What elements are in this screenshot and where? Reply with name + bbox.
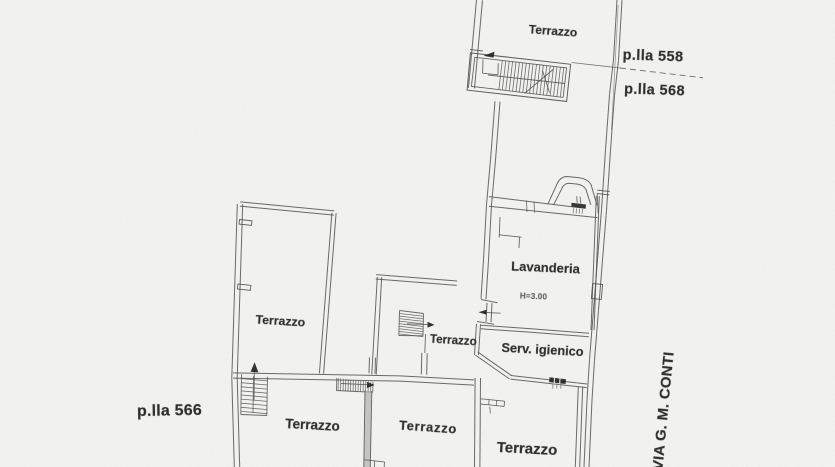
- svg-text:p.lla 568: p.lla 568: [624, 81, 685, 99]
- svg-text:Terrazzo: Terrazzo: [285, 416, 340, 434]
- svg-text:p.lla 566: p.lla 566: [137, 402, 202, 420]
- svg-text:Lavanderia: Lavanderia: [511, 258, 581, 276]
- svg-text:H=3.00: H=3.00: [520, 292, 548, 302]
- svg-text:p.lla 558: p.lla 558: [622, 47, 683, 65]
- svg-text:Terrazzo: Terrazzo: [496, 439, 557, 459]
